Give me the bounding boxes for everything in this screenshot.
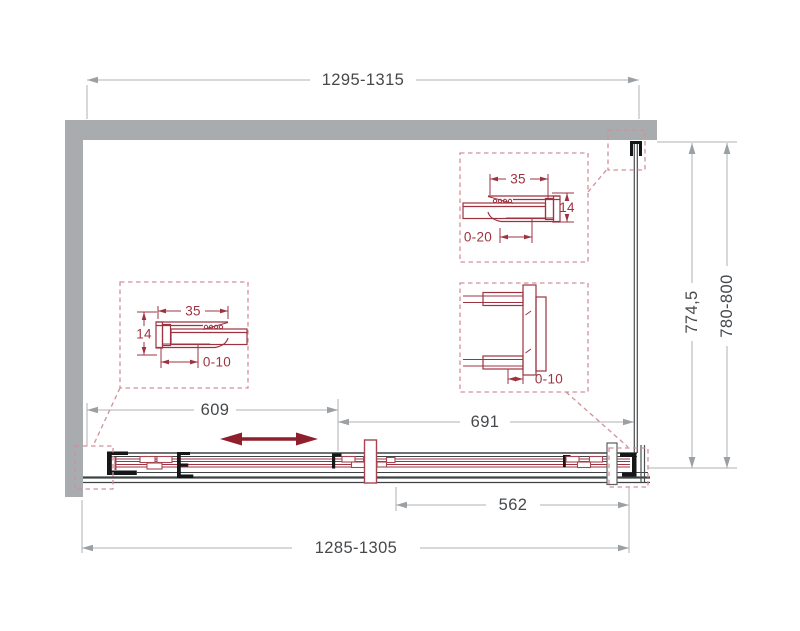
door-knob-profile <box>365 440 377 483</box>
dim-slide-width-label: 562 <box>499 496 528 514</box>
technical-drawing-page: 1295-1315 774,5 780-800 609 691 562 <box>0 0 800 631</box>
sliding-track <box>83 440 650 485</box>
dimension-top-width: 1295-1315 <box>87 71 639 119</box>
detail-left-width-label: 35 <box>185 304 201 319</box>
dim-door-panel-label: 691 <box>471 413 500 431</box>
detail-bottom-right-profile: 0-10 <box>463 285 563 387</box>
dim-depth-glass-label: 774,5 <box>683 290 701 333</box>
dimension-slide-width: 562 <box>396 487 629 553</box>
leader-left <box>93 388 120 446</box>
detail-left-profile: 35 14 0-10 <box>136 304 247 370</box>
glass-clamp <box>632 143 641 157</box>
bracket-seal <box>115 457 117 470</box>
glass-edge <box>463 203 546 219</box>
detail-top-right-thickness-label: 14 <box>559 200 575 215</box>
slide-direction-arrow <box>220 433 318 446</box>
detail-top-right-profile: 35 14 0-20 <box>463 172 575 245</box>
technical-drawing-canvas: 1295-1315 774,5 780-800 609 691 562 <box>0 0 800 631</box>
dim-fixed-panel-label: 609 <box>201 401 230 419</box>
leader-bottom-right <box>566 392 628 447</box>
dim-depth-total-label: 780-800 <box>718 274 736 337</box>
detail-box-bottom-right <box>460 283 588 392</box>
wall-profile-bracket-left <box>107 452 137 476</box>
dimension-door-panel: 691 <box>338 413 634 431</box>
detail-bottom-right-adjust-label: 0-10 <box>535 372 563 387</box>
detail-left-thickness-label: 14 <box>136 327 152 342</box>
detail-top-right-width-label: 35 <box>510 172 526 187</box>
dimension-depth: 774,5 780-800 <box>648 142 737 468</box>
dim-bottom-width-label: 1285-1305 <box>315 539 398 557</box>
wall <box>65 120 657 497</box>
dim-top-width-label: 1295-1315 <box>322 71 405 89</box>
detail-top-right-adjust-label: 0-20 <box>464 230 492 245</box>
dimension-bottom-width: 1285-1305 <box>82 500 629 557</box>
leader-top-right <box>588 168 608 192</box>
return-glass-panel <box>632 143 641 454</box>
glass-edge <box>171 329 247 345</box>
detail-left-adjust-label: 0-10 <box>203 355 231 370</box>
